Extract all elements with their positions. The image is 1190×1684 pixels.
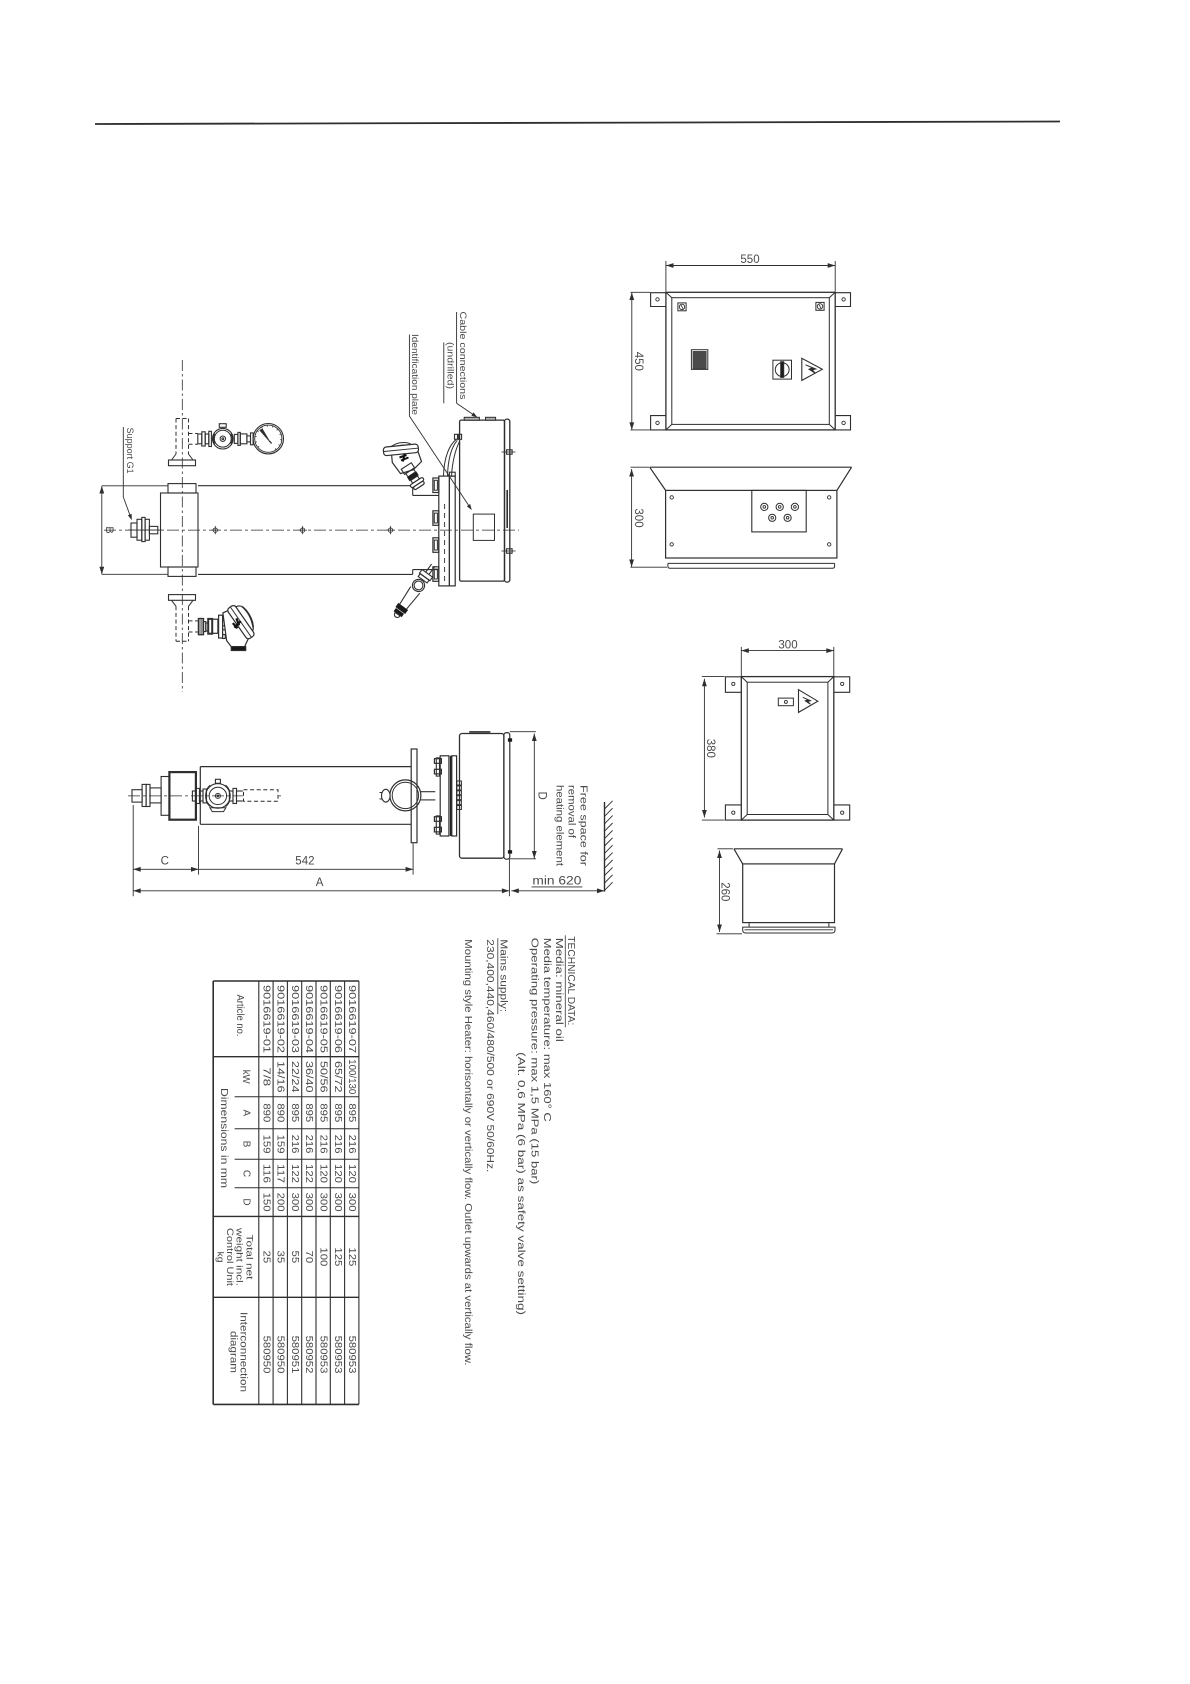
svg-text:125: 125 xyxy=(346,1247,357,1266)
svg-text:580952: 580952 xyxy=(303,1336,314,1374)
svg-text:117: 117 xyxy=(275,1164,286,1183)
svg-text:120: 120 xyxy=(317,1164,328,1183)
svg-text:580953: 580953 xyxy=(332,1336,343,1374)
svg-text:542: 542 xyxy=(295,856,314,868)
svg-text:Cable connections: Cable connections xyxy=(458,312,468,401)
svg-text:122: 122 xyxy=(303,1164,314,1183)
svg-text:216: 216 xyxy=(346,1135,357,1154)
svg-text:895: 895 xyxy=(303,1103,314,1122)
svg-text:C: C xyxy=(161,855,169,867)
svg-text:300: 300 xyxy=(632,508,644,527)
svg-text:Mains supply:: Mains supply: xyxy=(497,939,508,1012)
svg-text:159: 159 xyxy=(275,1135,286,1154)
svg-text:895: 895 xyxy=(317,1103,328,1122)
svg-text:580950: 580950 xyxy=(260,1336,271,1374)
svg-text:D: D xyxy=(241,1198,252,1205)
svg-text:50/56: 50/56 xyxy=(317,1061,328,1093)
svg-text:200: 200 xyxy=(275,1193,286,1212)
svg-text:22/24: 22/24 xyxy=(289,1061,300,1093)
svg-text:Operating pressure: max 1,5: Operating pressure: max 1,5 MPa (15 bar) xyxy=(529,938,540,1185)
svg-text:300: 300 xyxy=(303,1193,314,1212)
svg-text:450: 450 xyxy=(632,352,644,371)
svg-text:260: 260 xyxy=(719,882,731,901)
svg-text:580953: 580953 xyxy=(346,1336,357,1374)
svg-text:9016619-01: 9016619-01 xyxy=(260,985,271,1054)
svg-text:Mounting style Heater: hori: Mounting style Heater: horisontally or v… xyxy=(462,939,473,1365)
svg-text:300: 300 xyxy=(332,1193,343,1212)
svg-text:100/130: 100/130 xyxy=(346,1059,357,1095)
svg-text:9016619-02: 9016619-02 xyxy=(275,985,286,1054)
svg-text:7/8: 7/8 xyxy=(260,1067,271,1086)
svg-text:895: 895 xyxy=(346,1103,357,1122)
svg-text:Dimensions in mm: Dimensions in mm xyxy=(218,1088,229,1188)
svg-text:122: 122 xyxy=(289,1164,300,1183)
svg-text:895: 895 xyxy=(332,1103,343,1122)
svg-text:120: 120 xyxy=(346,1164,357,1183)
svg-text:580951: 580951 xyxy=(289,1336,300,1374)
svg-text:(undrilled): (undrilled) xyxy=(446,342,456,389)
svg-text:890: 890 xyxy=(260,1103,271,1122)
svg-text:65/72: 65/72 xyxy=(332,1061,343,1093)
svg-text:kW: kW xyxy=(240,1070,251,1085)
svg-text:min 620: min 620 xyxy=(532,876,581,888)
svg-text:TECHNICAL DATA:: TECHNICAL DATA: xyxy=(565,936,576,1025)
svg-text:Media temperature: max 160°: Media temperature: max 160° C xyxy=(541,938,552,1122)
svg-text:Free space for: Free space for xyxy=(577,785,588,867)
svg-text:580950: 580950 xyxy=(275,1336,286,1374)
svg-text:125: 125 xyxy=(332,1247,343,1266)
svg-text:300: 300 xyxy=(289,1193,300,1212)
svg-text:9016619-07: 9016619-07 xyxy=(346,985,357,1054)
svg-text:C: C xyxy=(241,1170,252,1177)
svg-text:B: B xyxy=(241,1141,252,1148)
svg-text:Media: mineral oil: Media: mineral oil xyxy=(553,938,564,1042)
svg-text:70: 70 xyxy=(303,1251,314,1264)
svg-text:55: 55 xyxy=(289,1251,300,1264)
svg-text:550: 550 xyxy=(740,254,759,266)
svg-text:25: 25 xyxy=(260,1251,271,1264)
svg-text:216: 216 xyxy=(332,1135,343,1154)
svg-text:159: 159 xyxy=(260,1135,271,1154)
svg-text:removal of: removal of xyxy=(565,785,576,838)
svg-text:Article no.: Article no. xyxy=(234,995,245,1037)
svg-text:A: A xyxy=(316,877,324,889)
svg-text:120: 120 xyxy=(332,1164,343,1183)
svg-text:150: 150 xyxy=(260,1193,271,1212)
svg-text:300: 300 xyxy=(778,640,797,652)
svg-text:230,400,440,460/480/500 or 6: 230,400,440,460/480/500 or 690V 50/60Hz. xyxy=(484,939,495,1172)
svg-text:9016619-03: 9016619-03 xyxy=(289,985,300,1054)
svg-text:895: 895 xyxy=(289,1103,300,1122)
svg-text:heating element: heating element xyxy=(553,785,564,866)
svg-text:890: 890 xyxy=(275,1103,286,1122)
svg-text:100: 100 xyxy=(317,1247,328,1266)
svg-text:diagram: diagram xyxy=(228,1331,239,1373)
svg-text:Support G1: Support G1 xyxy=(125,428,135,474)
svg-text:116: 116 xyxy=(260,1164,271,1183)
svg-text:A: A xyxy=(241,1109,252,1116)
svg-text:9016619-05: 9016619-05 xyxy=(317,985,328,1054)
svg-text:380: 380 xyxy=(704,739,716,758)
svg-text:Identification plate: Identification plate xyxy=(410,334,420,415)
svg-text:D: D xyxy=(536,792,548,800)
svg-text:35: 35 xyxy=(275,1251,286,1264)
svg-text:(Alt. 0,6 MPa (6 bar) as: (Alt. 0,6 MPa (6 bar) as safety valve se… xyxy=(515,1052,526,1315)
svg-text:9016619-04: 9016619-04 xyxy=(303,985,314,1054)
svg-text:36/40: 36/40 xyxy=(303,1061,314,1093)
svg-text:300: 300 xyxy=(317,1193,328,1212)
svg-text:580953: 580953 xyxy=(317,1336,328,1374)
svg-text:216: 216 xyxy=(289,1135,300,1154)
svg-text:14/16: 14/16 xyxy=(275,1061,286,1093)
svg-text:300: 300 xyxy=(346,1193,357,1212)
svg-text:9016619-06: 9016619-06 xyxy=(332,985,343,1054)
svg-text:kg: kg xyxy=(214,1252,225,1263)
svg-text:216: 216 xyxy=(303,1135,314,1154)
svg-text:216: 216 xyxy=(317,1135,328,1154)
